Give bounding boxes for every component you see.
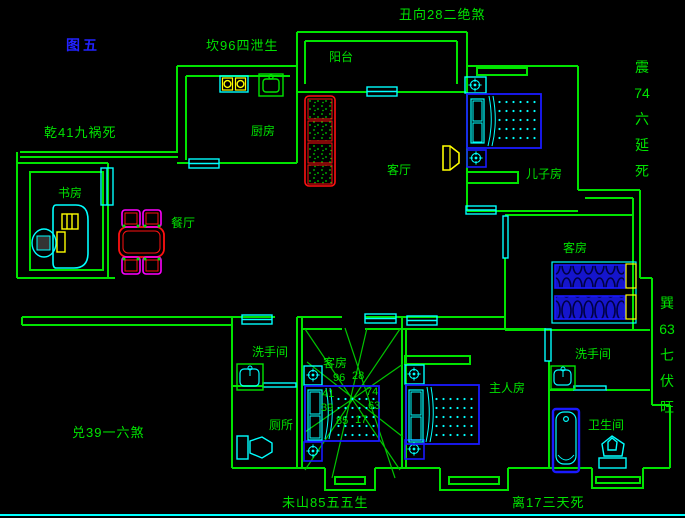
guest-right-door: [503, 216, 508, 258]
son-room-ac-bottom: [467, 150, 486, 167]
compass-number-74: 74: [366, 386, 378, 398]
kitchen-window: [189, 159, 219, 168]
room-label-study: 书房: [58, 186, 82, 201]
son-room-ac-top: [465, 77, 486, 93]
dining-table: [119, 227, 164, 257]
plant-sofa: [305, 96, 335, 186]
compass-text-east-vertical: 震 74 六 延 死: [632, 56, 652, 186]
room-label-son-room: 儿子房: [526, 167, 562, 182]
compass-text-south: 离17三天死: [512, 495, 584, 510]
compass-text-southeast-vertical: 巽 63 七 伏 旺: [657, 292, 677, 422]
room-label-toilet: 厕所: [269, 418, 293, 433]
figure-number-label: 图五: [66, 38, 100, 53]
room-label-guest-room-center: 客房: [323, 356, 347, 371]
compass-number-39: 39: [321, 402, 333, 414]
room-label-dining: 餐厅: [171, 216, 195, 231]
toilet-threshold: [263, 383, 296, 387]
compass-text-north: 坎96四泄生: [206, 38, 278, 53]
room-label-living-room: 客厅: [387, 163, 411, 178]
compass-text-northeast: 丑向28二绝煞: [399, 7, 485, 22]
room-label-washroom-right: 洗手间: [575, 347, 611, 362]
compass-number-85: 85: [336, 415, 348, 427]
master-bath-door: [545, 329, 551, 361]
room-label-washroom-left: 洗手间: [252, 345, 288, 360]
floor-plan-drawing: [0, 0, 685, 518]
room-label-bathroom: 卫生间: [588, 418, 624, 433]
compass-number-96: 96: [333, 372, 345, 384]
study-computer: [57, 214, 78, 252]
master-nightstand-top: [405, 365, 424, 384]
tv: [443, 146, 459, 170]
twin-beds: [552, 262, 636, 323]
bathroom-toilet: [599, 436, 626, 468]
son-room-window: [466, 206, 496, 214]
compass-text-northwest: 乾41九祸死: [44, 125, 116, 140]
room-label-kitchen: 厨房: [251, 124, 275, 139]
guest-center-window: [365, 314, 396, 323]
balcony-window: [367, 87, 397, 96]
bathtub: [553, 409, 579, 472]
room-label-guest-room-right: 客房: [563, 241, 587, 256]
bathroom-threshold: [574, 386, 606, 390]
kitchen-sink: [259, 74, 283, 96]
bottom-edge-line: [0, 514, 685, 516]
compass-number-28: 28: [352, 370, 364, 382]
compass-text-west: 兑39一六煞: [72, 425, 144, 440]
stove: [220, 76, 248, 92]
floor-plan-canvas: 图五 坎96四泄生 丑向28二绝煞 乾41九祸死 兑39一六煞 未山85五五生 …: [0, 0, 685, 518]
master-nightstand-bottom: [405, 440, 424, 459]
compass-text-southwest: 未山85五五生: [282, 495, 368, 510]
washroom-right-sink: [551, 366, 575, 389]
compass-number-63: 63: [368, 400, 380, 412]
room-label-balcony: 阳台: [329, 50, 353, 65]
toilet-room-toilet: [237, 436, 272, 459]
compass-number-41: 41: [322, 388, 334, 400]
guest-center-nightstand-top: [304, 366, 322, 385]
room-label-master-room: 主人房: [489, 381, 525, 396]
dining-chairs: [122, 210, 161, 274]
master-bed: [406, 385, 479, 444]
compass-number-17: 17: [355, 414, 367, 426]
son-room-bed: [467, 94, 541, 148]
